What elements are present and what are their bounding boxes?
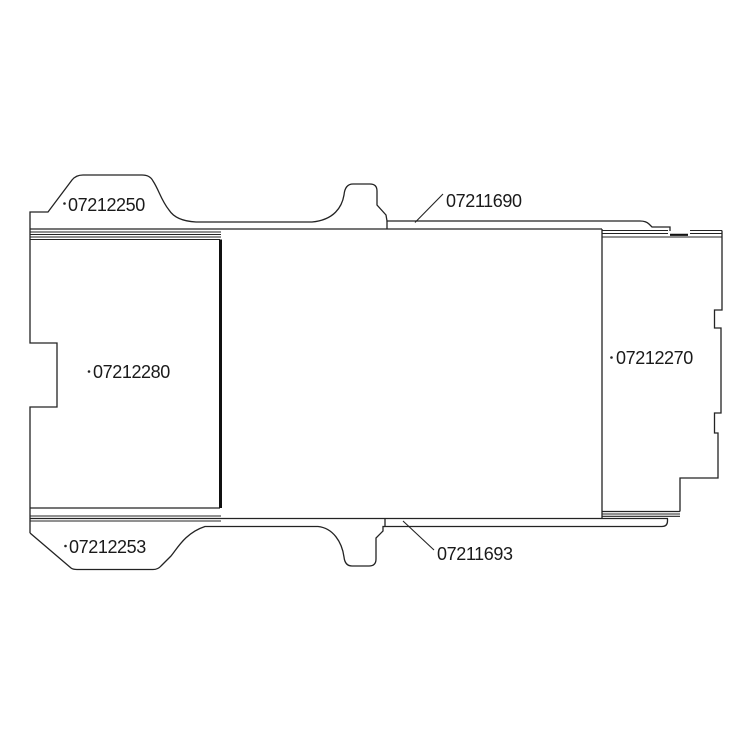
leader-line-bottom-right <box>403 521 434 550</box>
leader-line-top-right <box>415 194 443 223</box>
part-label-bottom-right: 07211693 <box>437 544 513 564</box>
part-label-top-left: 07212250 <box>68 195 145 215</box>
leader-dot-left <box>88 370 91 373</box>
parts-diagram-canvas: 07212250 07211690 07212280 07212270 0721… <box>0 0 750 750</box>
part-label-right-panel: 07212270 <box>616 348 693 368</box>
leader-dot-bottom-left <box>64 545 67 548</box>
left-panel-outline <box>30 229 57 533</box>
part-label-left-panel: 07212280 <box>93 362 170 382</box>
part-label-top-right: 07211690 <box>446 191 522 211</box>
leader-dot-right <box>610 356 613 359</box>
leader-dot-top-left <box>63 202 66 205</box>
bottom-bar-outline <box>385 519 668 527</box>
parts-diagram: 07212250 07211690 07212280 07212270 0721… <box>0 0 750 750</box>
part-label-bottom-left: 07212253 <box>69 537 146 557</box>
right-panel-outline <box>680 231 722 512</box>
